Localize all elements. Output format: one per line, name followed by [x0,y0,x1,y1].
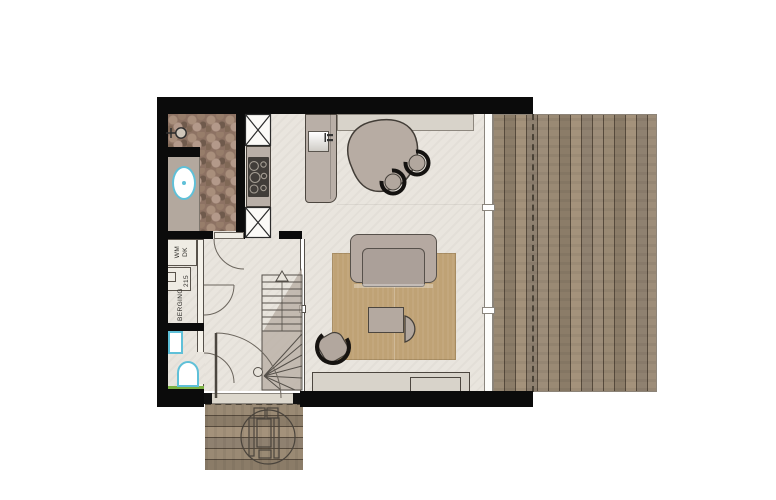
stairs [254,268,303,390]
island-faucet-icon [325,133,334,142]
dining-table [348,120,418,192]
wc-toilet [178,362,198,386]
stove-icon [248,157,269,197]
shower-icon [166,128,186,138]
lounge-chair [311,325,355,369]
deck-furniture [241,408,295,464]
side-table [405,316,415,342]
vector-layer [0,0,776,500]
floor-plan: WM DK 215 WP BERGING [0,0,776,500]
